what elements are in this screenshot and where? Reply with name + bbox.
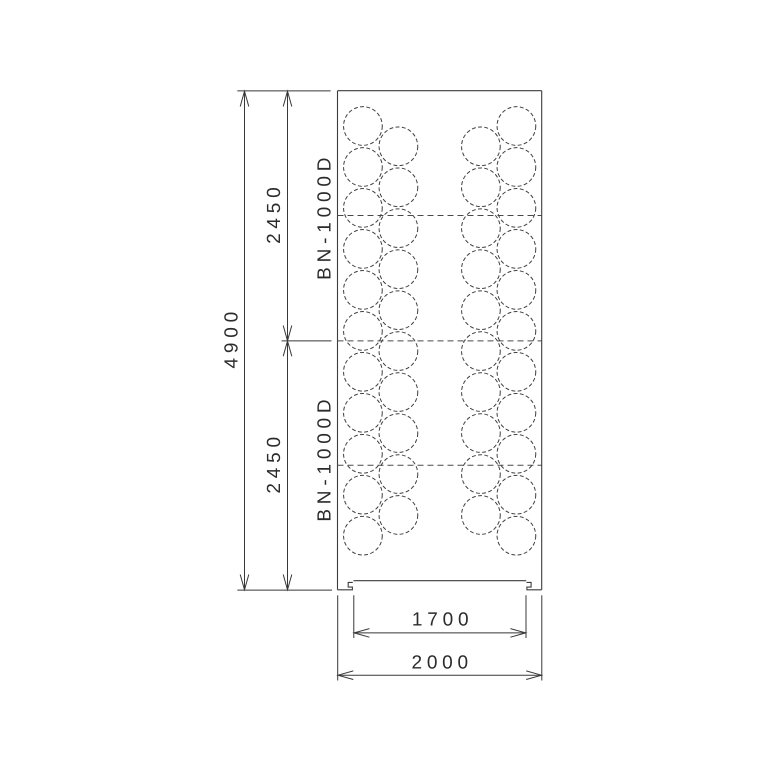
svg-text:2450: 2450 bbox=[264, 182, 285, 243]
svg-text:1700: 1700 bbox=[412, 610, 473, 631]
svg-text:BN-1000D: BN-1000D bbox=[315, 153, 336, 280]
svg-text:BN-1000D: BN-1000D bbox=[315, 395, 336, 522]
svg-text:2000: 2000 bbox=[411, 652, 472, 673]
svg-text:2450: 2450 bbox=[264, 432, 285, 493]
svg-text:4900: 4900 bbox=[221, 307, 242, 368]
